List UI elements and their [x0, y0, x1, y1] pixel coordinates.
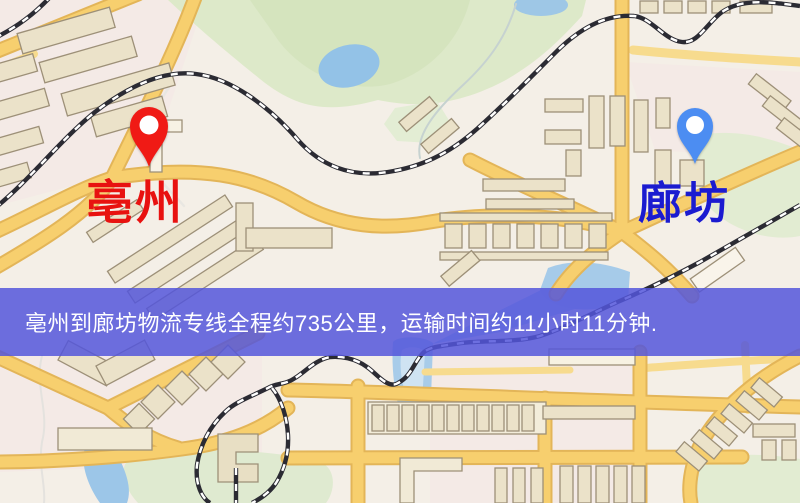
map-canvas[interactable]: [0, 0, 800, 503]
route-info-text: 亳州到廊坊物流专线全程约735公里，运输时间约11小时11分钟.: [0, 306, 658, 338]
destination-pin-hole: [686, 116, 704, 134]
destination-pin-icon[interactable]: [669, 100, 721, 166]
route-info-banner: 亳州到廊坊物流专线全程约735公里，运输时间约11小时11分钟.: [0, 288, 800, 356]
origin-pin-icon[interactable]: [122, 99, 176, 169]
destination-city-label: 廊坊: [638, 182, 730, 226]
origin-pin-hole: [140, 116, 159, 135]
origin-city-label: 亳州: [86, 179, 184, 226]
map-screenshot: 亳州 廊坊 亳州到廊坊物流专线全程约735公里，运输时间约11小时11分钟.: [0, 0, 800, 503]
